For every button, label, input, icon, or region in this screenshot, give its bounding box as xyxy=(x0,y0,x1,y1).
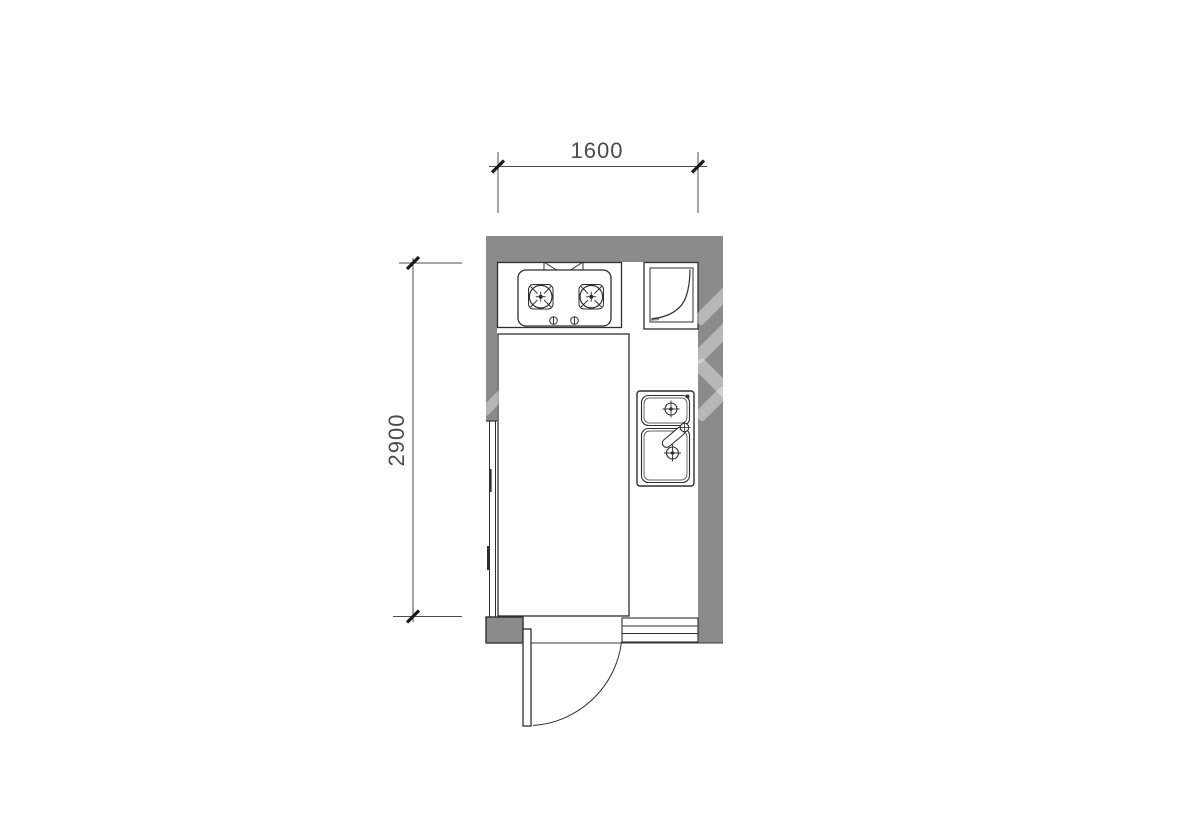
dimension-depth-label: 2900 xyxy=(386,412,408,468)
door-leaf xyxy=(523,629,531,726)
window xyxy=(487,421,496,617)
threshold-step xyxy=(622,618,698,642)
floor-area-outline xyxy=(498,334,629,616)
swing-door xyxy=(523,629,622,726)
wall-pier-bottom-left xyxy=(486,617,523,643)
corner-appliance-icon xyxy=(644,263,698,330)
window-mark-upper xyxy=(489,469,492,492)
wall-top xyxy=(486,236,723,262)
door-swing-arc xyxy=(533,642,622,726)
dimension-width-label: 1600 xyxy=(569,140,625,162)
floor-plan-drawing xyxy=(0,0,1198,831)
window-mark-lower xyxy=(487,546,490,570)
double-bowl-sink-icon xyxy=(637,391,694,486)
counter-top-run xyxy=(498,262,622,328)
floor-plan-canvas: 1600 2900 xyxy=(0,0,1198,831)
gas-cooktop-icon xyxy=(518,270,611,326)
